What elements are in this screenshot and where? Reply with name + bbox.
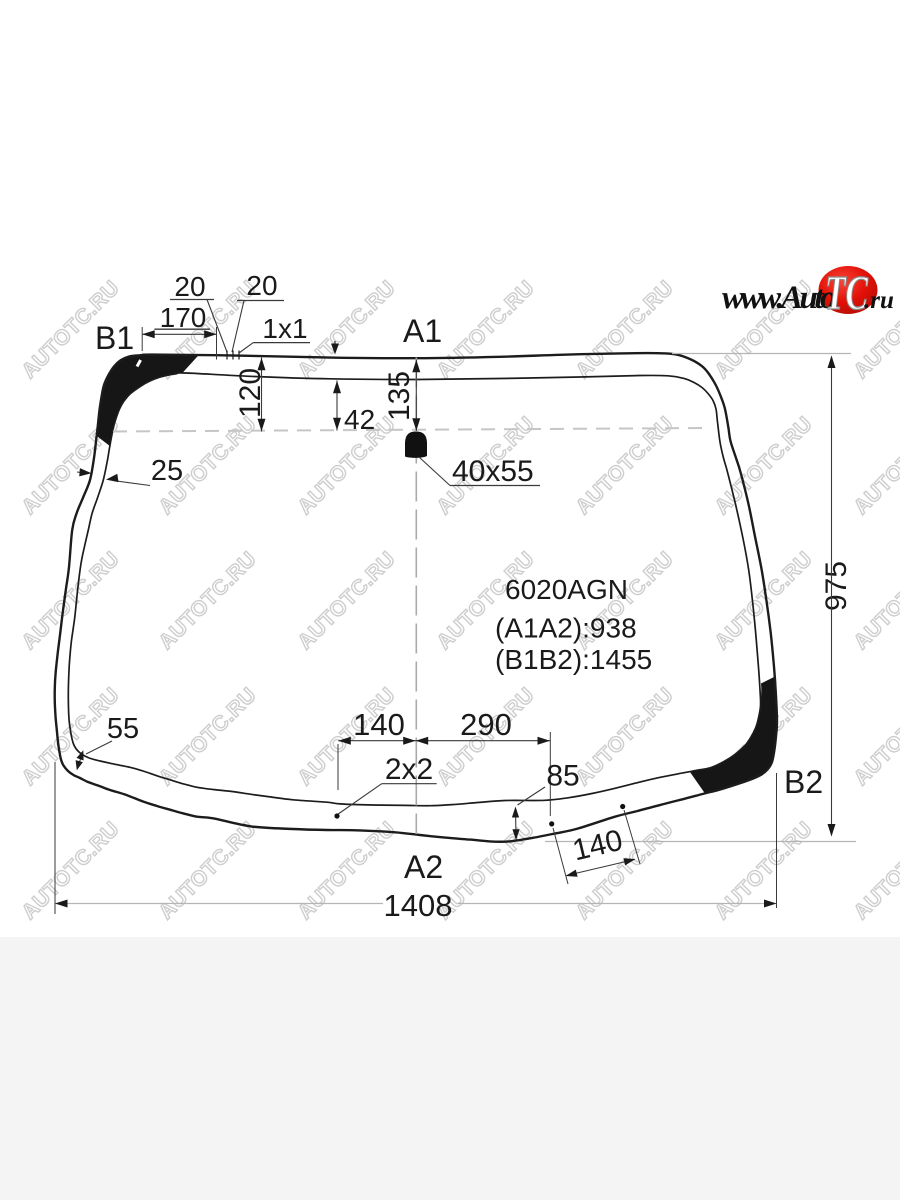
svg-text:140: 140 [569,824,625,868]
svg-text:B1: B1 [95,320,134,356]
svg-text:290: 290 [460,707,512,742]
svg-text:135: 135 [383,371,416,421]
svg-text:A1: A1 [403,313,442,349]
svg-text:1x1: 1x1 [262,313,307,344]
svg-text:140: 140 [353,707,405,742]
svg-text:85: 85 [546,760,579,793]
svg-text:1408: 1408 [384,888,453,923]
svg-text:42: 42 [344,404,375,435]
svg-text:A2: A2 [404,849,443,885]
svg-text:.ru: .ru [864,287,894,314]
svg-text:TC: TC [825,265,869,320]
svg-text:20: 20 [246,270,277,301]
svg-text:25: 25 [151,455,183,487]
svg-text:B2: B2 [784,764,823,800]
svg-text:www.Auto: www.Auto [722,280,836,316]
svg-text:2x2: 2x2 [385,753,433,786]
svg-text:(A1A2):938: (A1A2):938 [495,613,637,644]
svg-text:6020AGN: 6020AGN [505,574,628,605]
svg-text:20: 20 [174,271,205,302]
svg-text:975: 975 [820,561,853,611]
svg-text:55: 55 [107,713,139,745]
svg-text:170: 170 [160,302,207,333]
svg-text:40x55: 40x55 [452,455,534,488]
svg-text:(B1B2):1455: (B1B2):1455 [495,644,652,675]
